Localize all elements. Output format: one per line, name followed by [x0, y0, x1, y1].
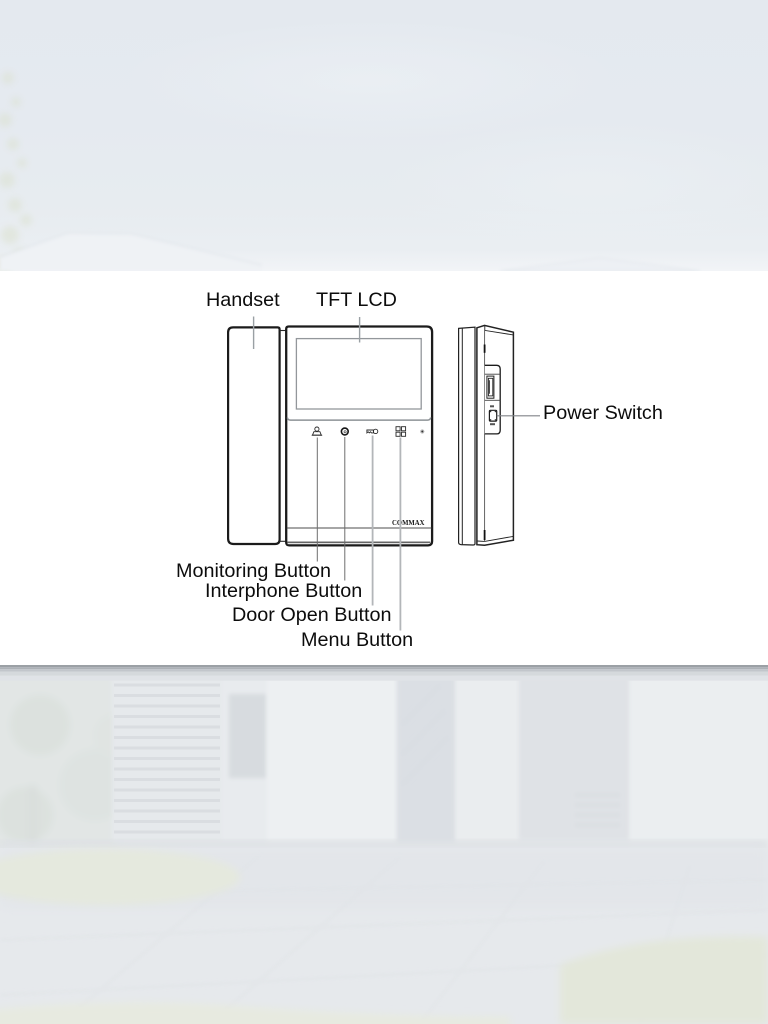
svg-text:COMMAX: COMMAX: [392, 518, 425, 527]
